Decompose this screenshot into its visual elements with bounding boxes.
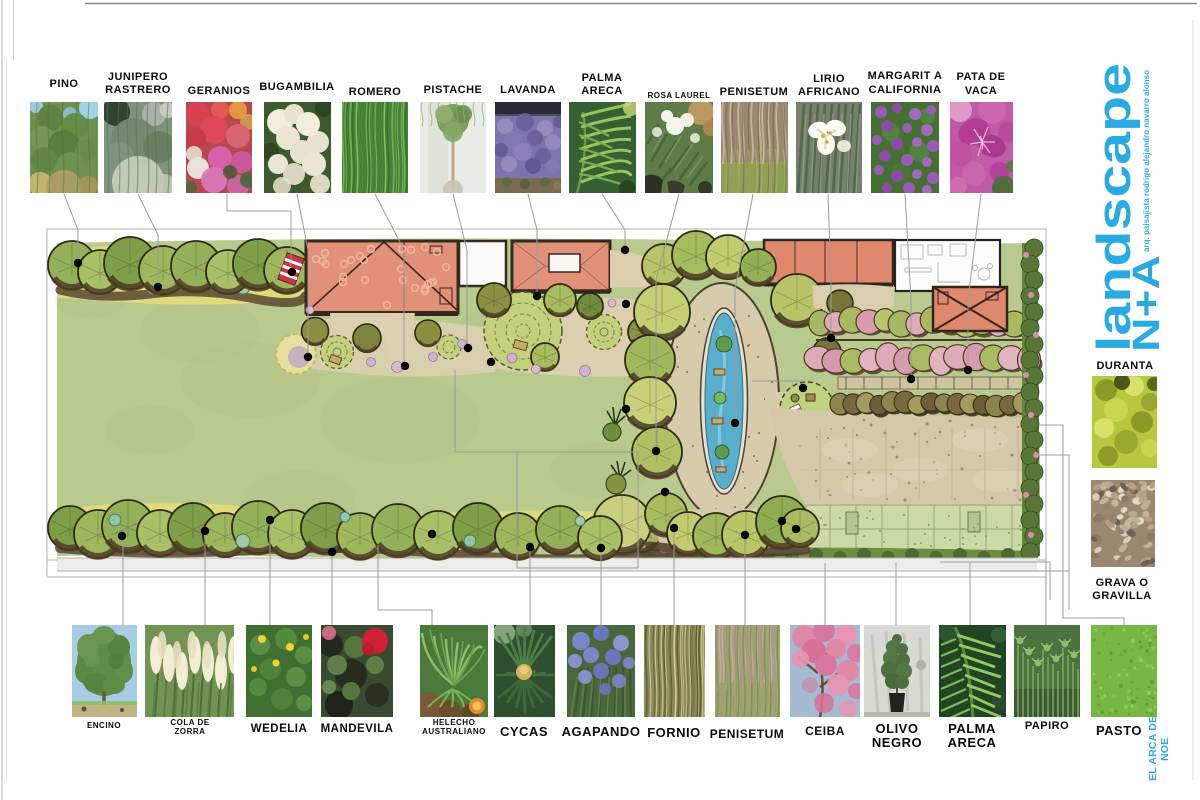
svg-text:WEDELIA: WEDELIA [251, 723, 308, 735]
svg-text:PINO: PINO [50, 78, 79, 90]
svg-text:NEGRO: NEGRO [872, 735, 922, 750]
svg-text:VACA: VACA [965, 85, 997, 97]
svg-text:NOE: NOE [1159, 738, 1171, 761]
svg-text:PALMA: PALMA [948, 721, 996, 736]
svg-text:PAPIRO: PAPIRO [1025, 720, 1069, 732]
svg-text:CEIBA: CEIBA [805, 724, 845, 738]
svg-text:ZORRA: ZORRA [175, 727, 206, 736]
svg-text:GERANIOS: GERANIOS [188, 85, 251, 97]
svg-text:DURANTA: DURANTA [1096, 360, 1153, 372]
svg-text:MARGARIT A: MARGARIT A [868, 70, 943, 82]
svg-text:ROSA LAUREL: ROSA LAUREL [648, 91, 711, 100]
svg-text:ROMERO: ROMERO [349, 86, 402, 98]
svg-text:JUNIPERO: JUNIPERO [108, 71, 168, 83]
svg-text:LIRIO: LIRIO [813, 73, 845, 85]
svg-text:PALMA: PALMA [582, 72, 623, 84]
svg-text:PASTO: PASTO [1096, 723, 1142, 738]
svg-text:PENISETUM: PENISETUM [710, 727, 785, 741]
svg-text:RASTRERO: RASTRERO [105, 84, 171, 96]
svg-text:arq. paisajista rodrigo alejan: arq. paisajista rodrigo alejandro navarr… [1142, 70, 1151, 252]
svg-text:HELECHO: HELECHO [433, 718, 476, 727]
svg-text:FORNIO: FORNIO [647, 725, 701, 740]
svg-text:MANDEVILA: MANDEVILA [321, 723, 394, 735]
svg-text:CYCAS: CYCAS [500, 724, 548, 739]
svg-text:PENISETUM: PENISETUM [720, 86, 789, 98]
svg-text:GRAVILLA: GRAVILLA [1092, 590, 1151, 602]
svg-text:COLA DE: COLA DE [170, 718, 209, 727]
svg-text:AFRICANO: AFRICANO [798, 86, 860, 98]
svg-text:LAVANDA: LAVANDA [500, 84, 556, 96]
svg-text:EL ARCA DE: EL ARCA DE [1147, 716, 1159, 781]
svg-text:AUSTRALIANO: AUSTRALIANO [422, 727, 486, 736]
svg-text:OLIVO: OLIVO [876, 721, 919, 736]
svg-text:ENCINO: ENCINO [87, 721, 121, 730]
svg-text:PISTACHE: PISTACHE [424, 84, 483, 96]
svg-text:GRAVA O: GRAVA O [1096, 577, 1149, 589]
svg-text:AGAPANDO: AGAPANDO [562, 724, 641, 739]
svg-text:PATA DE: PATA DE [957, 71, 1006, 83]
svg-text:ARECA: ARECA [948, 735, 997, 750]
svg-text:BUGAMBILIA: BUGAMBILIA [259, 81, 334, 93]
svg-text:ARECA: ARECA [581, 85, 623, 97]
svg-text:CALIFORNIA: CALIFORNIA [869, 84, 942, 96]
svg-text:N+A: N+A [1126, 255, 1168, 352]
